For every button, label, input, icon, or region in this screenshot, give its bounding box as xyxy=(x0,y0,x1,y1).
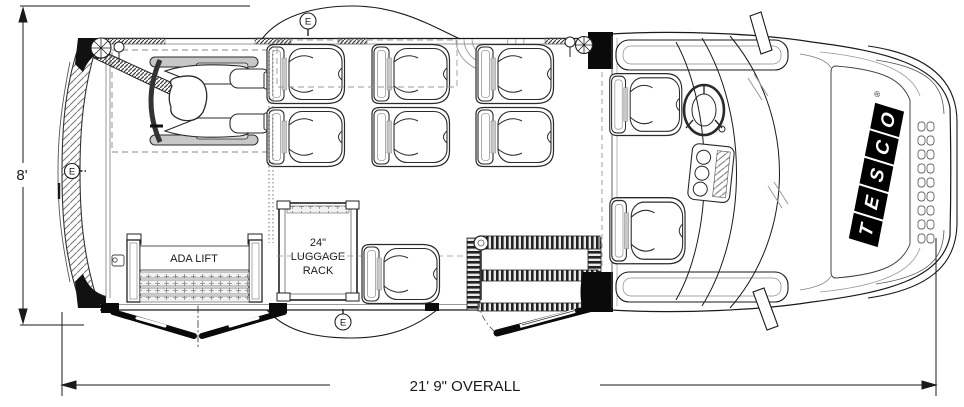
exit-marker-rear: E xyxy=(65,164,87,179)
floor-plan-svg: 8' 21' 9" OVERALL xyxy=(0,0,964,407)
lift-rail-right xyxy=(249,240,262,302)
driver-seat xyxy=(610,74,682,136)
grab-post xyxy=(474,236,488,250)
passenger-seat-3 xyxy=(476,45,554,104)
body-width-label: 8' xyxy=(16,167,27,184)
front-passenger-seat xyxy=(610,198,685,264)
light-icon-front xyxy=(565,37,575,57)
wall-block xyxy=(425,303,439,311)
lift-handle xyxy=(112,255,124,266)
ada-lift-label: ADA LIFT xyxy=(170,253,218,265)
ada-lift-doors xyxy=(113,306,284,348)
luggage-word2-label: RACK xyxy=(303,265,334,277)
cab: T E S C O ® xyxy=(602,12,957,330)
grille xyxy=(918,122,934,243)
passenger-seat-1 xyxy=(267,45,345,104)
lift-rail-left xyxy=(127,240,140,302)
luggage-word1-label: LUGGAGE xyxy=(291,251,345,263)
fender-flare-bottom xyxy=(267,310,437,338)
dashboard-console xyxy=(687,143,735,203)
arrowhead-right xyxy=(922,381,936,389)
rack-corner xyxy=(346,201,359,209)
fan-icon-front xyxy=(576,37,593,54)
hood xyxy=(800,52,920,292)
windshield-front-arc xyxy=(730,36,780,308)
ada-lift: ADA LIFT xyxy=(112,234,262,302)
passenger-seat-4 xyxy=(267,108,345,167)
fan-icon xyxy=(91,38,111,58)
lift-platform-row xyxy=(140,288,249,294)
top-wall-hatch-3 xyxy=(338,38,367,44)
exit-marker-bottom: E xyxy=(335,309,351,330)
rack-corner xyxy=(346,293,359,301)
step-tread-1 xyxy=(480,236,600,249)
floor-plan-drawing: 8' 21' 9" OVERALL xyxy=(0,0,964,407)
registered-mark: ® xyxy=(872,90,882,99)
wheelchair-occupant xyxy=(150,57,277,145)
exit-marker-top: E xyxy=(300,13,316,36)
luggage-size-label: 24" xyxy=(310,237,326,249)
b-pillar-top xyxy=(588,32,613,69)
occupant-head xyxy=(169,76,207,121)
arrowhead-left xyxy=(62,381,76,389)
rack-top-strip xyxy=(287,206,349,213)
passenger-seat-2 xyxy=(372,45,450,104)
rack-corner xyxy=(277,201,290,209)
luggage-rack: 24" LUGGAGE RACK xyxy=(277,201,359,301)
exit-letter: E xyxy=(340,318,346,329)
passenger-seat-6 xyxy=(476,108,554,167)
exit-letter: E xyxy=(69,167,75,178)
tesco-logo: T E S C O ® xyxy=(844,90,907,247)
entry-steps xyxy=(467,236,610,312)
arrowhead-down xyxy=(19,309,27,323)
front-edge xyxy=(950,108,951,236)
step-tread-2 xyxy=(480,270,598,281)
overall-length-label: 21' 9" OVERALL xyxy=(410,378,521,395)
passenger-seat-5 xyxy=(372,108,450,167)
exit-letter: E xyxy=(305,17,311,28)
column-lever xyxy=(719,126,725,132)
steering-wheel xyxy=(684,85,725,135)
lift-platform-row xyxy=(140,296,249,302)
fender-flare-top xyxy=(262,6,460,39)
lift-platform-row xyxy=(140,280,249,286)
rack-corner xyxy=(277,293,290,301)
glass-reflections xyxy=(748,74,788,208)
lift-door-right xyxy=(202,312,284,336)
aisle-seat xyxy=(362,245,440,304)
lift-platform-row xyxy=(140,272,249,278)
wheelchair-backrest xyxy=(151,60,160,142)
arrowhead-up xyxy=(19,8,27,22)
